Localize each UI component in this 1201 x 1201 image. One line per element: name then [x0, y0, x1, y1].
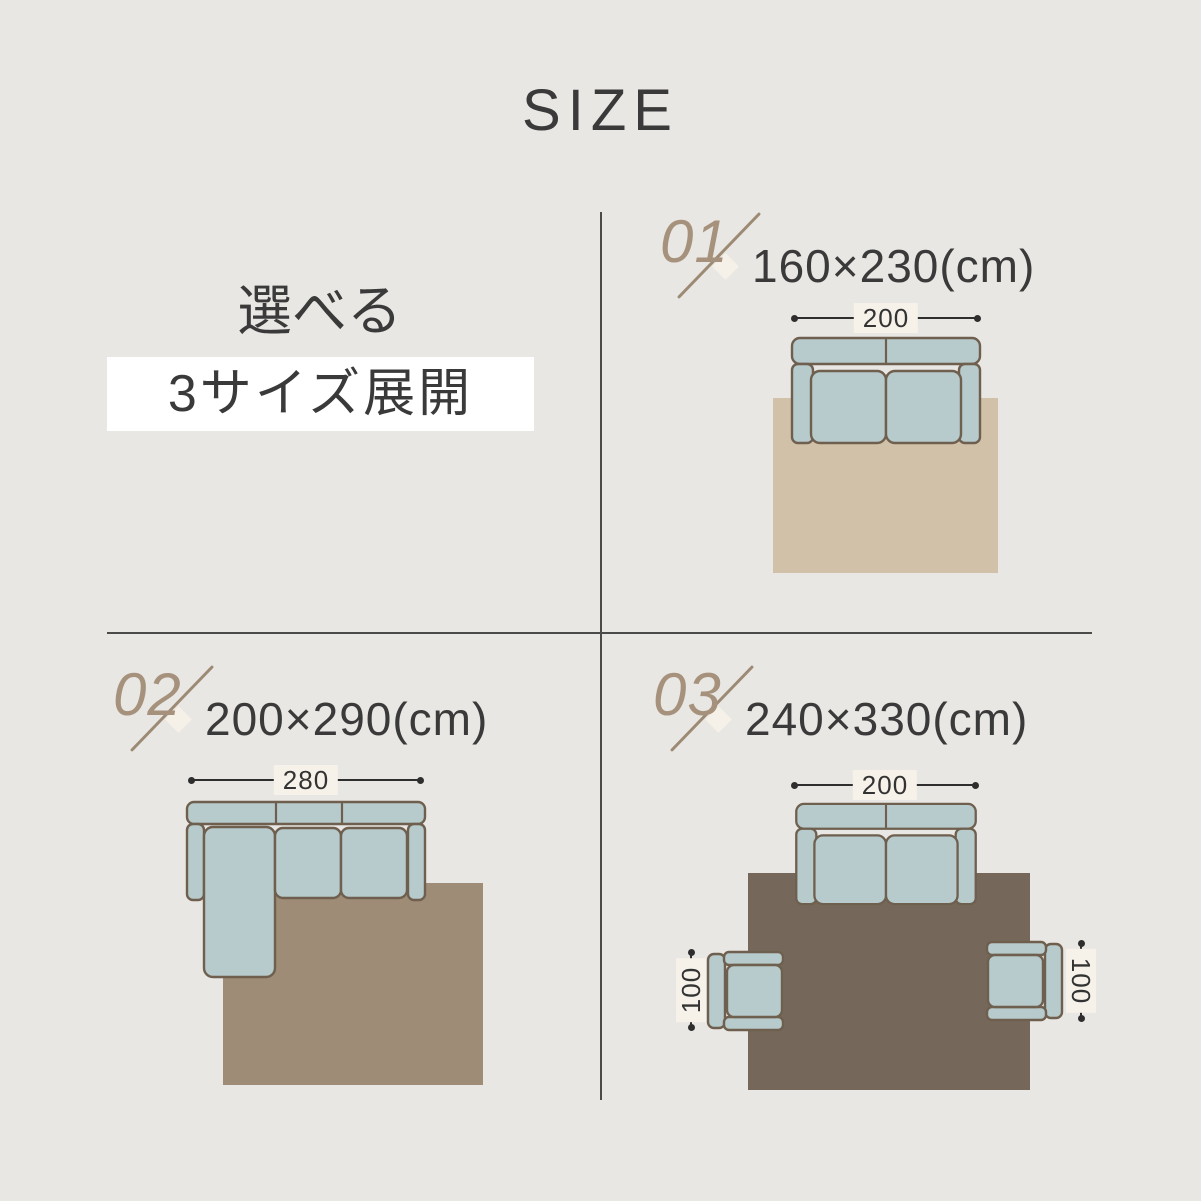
option-01-number: 01 [660, 212, 729, 272]
option-02-size-text: 200×290(cm) [205, 696, 488, 742]
chair-width-dimension-right: 100 [1080, 942, 1082, 1020]
option-03-number: 03 [653, 665, 722, 725]
dimension-label: 200 [853, 770, 917, 800]
vertical-divider [600, 212, 602, 1100]
sofa-width-dimension-03: 200 [793, 784, 977, 786]
page-title: SIZE [0, 82, 1201, 140]
l-shaped-sofa-icon [185, 800, 427, 980]
dimension-label: 280 [274, 765, 338, 795]
dimension-label: 200 [854, 303, 918, 333]
tagline-highlight-box: 3サイズ展開 [107, 357, 534, 431]
dimension-label: 100 [1066, 949, 1096, 1013]
chair-width-dimension-left: 100 [690, 951, 692, 1029]
size-infographic: SIZE 選べる 3サイズ展開 01 160×230(cm) 200 02 20… [0, 0, 1201, 1201]
dimension-label: 100 [676, 958, 706, 1022]
horizontal-divider [107, 632, 1092, 634]
option-01-size-text: 160×230(cm) [752, 243, 1035, 289]
two-seat-sofa-icon [790, 336, 982, 446]
armchair-right-icon [985, 940, 1064, 1022]
option-02-number: 02 [113, 665, 182, 725]
sofa-width-dimension-01: 200 [793, 317, 979, 319]
option-03-size-text: 240×330(cm) [745, 696, 1028, 742]
tagline-line1: 選べる [98, 283, 541, 341]
option-02-header: 02 200×290(cm) [111, 663, 511, 747]
tagline-line2: 3サイズ展開 [168, 368, 473, 420]
option-01-header: 01 160×230(cm) [658, 210, 1058, 294]
sofa-width-dimension-02: 280 [190, 779, 422, 781]
option-03-header: 03 240×330(cm) [651, 663, 1051, 747]
armchair-left-icon [706, 950, 785, 1032]
two-seat-sofa-icon [794, 802, 978, 907]
